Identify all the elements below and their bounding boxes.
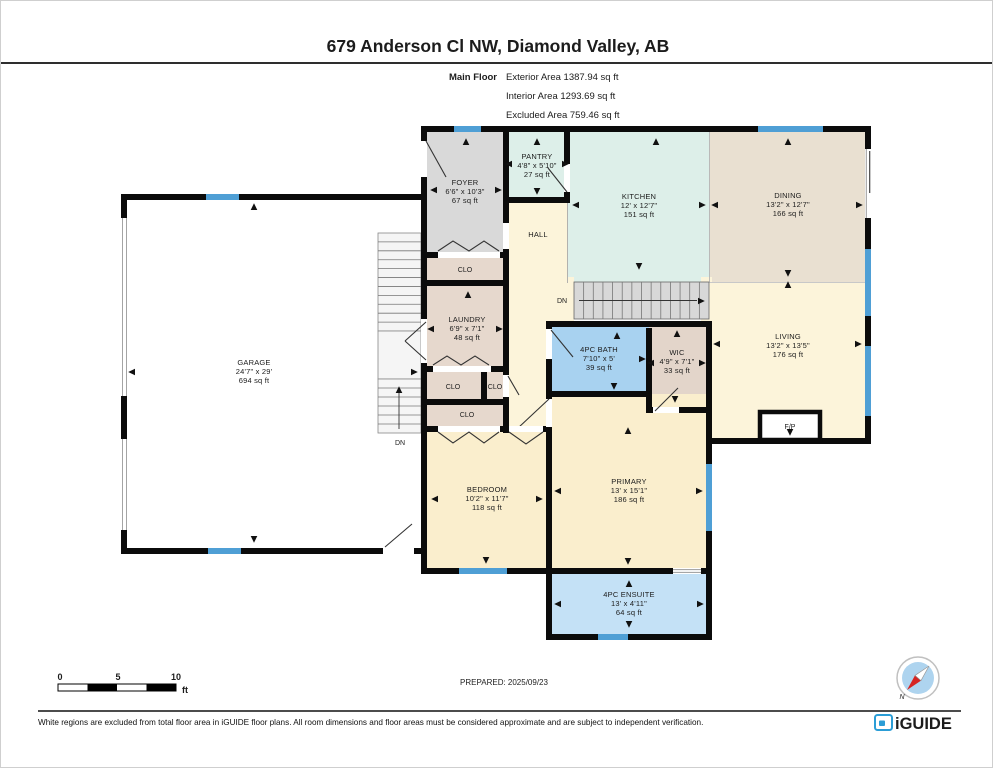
- closet-label: CLO: [488, 384, 503, 391]
- svg-text:13'2" x 12'7": 13'2" x 12'7": [766, 200, 810, 209]
- interior-area: Interior Area 1293.69 sq ft: [506, 91, 616, 102]
- wic-door: [653, 407, 679, 413]
- svg-text:GARAGE: GARAGE: [237, 358, 270, 367]
- hall-label: HALL: [528, 230, 548, 239]
- svg-text:27 sq ft: 27 sq ft: [524, 170, 551, 179]
- window: [208, 548, 241, 554]
- svg-text:4'9" x 7'1": 4'9" x 7'1": [660, 357, 695, 366]
- closet-label: CLO: [458, 267, 473, 274]
- svg-text:BEDROOM: BEDROOM: [467, 485, 507, 494]
- down-label: DN: [395, 440, 405, 447]
- pocket-door: [673, 568, 701, 574]
- room-fills: [124, 129, 868, 637]
- svg-text:KITCHEN: KITCHEN: [622, 192, 656, 201]
- floor-label: Main Floor: [449, 72, 497, 83]
- footer: White regions are excluded from total fl…: [38, 711, 961, 733]
- garage-entry-door: [383, 548, 414, 554]
- scale-tick-10: 10: [171, 672, 181, 682]
- svg-text:176 sq ft: 176 sq ft: [773, 350, 804, 359]
- label-garage: GARAGE 24'7" x 29' 694 sq ft: [236, 358, 273, 385]
- header: 679 Anderson Cl NW, Diamond Valley, AB M…: [1, 36, 993, 121]
- scale-tick-0: 0: [57, 672, 62, 682]
- svg-text:64 sq ft: 64 sq ft: [616, 608, 643, 617]
- excluded-area: Excluded Area 759.46 sq ft: [506, 110, 620, 121]
- svg-text:12' x 12'7": 12' x 12'7": [621, 201, 658, 210]
- window: [459, 568, 507, 574]
- exterior-area: Exterior Area 1387.94 sq ft: [506, 72, 619, 83]
- svg-text:118 sq ft: 118 sq ft: [472, 503, 503, 512]
- svg-text:LIVING: LIVING: [775, 332, 801, 341]
- svg-text:166 sq ft: 166 sq ft: [773, 209, 804, 218]
- down-label: DN: [557, 298, 567, 305]
- floor-plan-page: 679 Anderson Cl NW, Diamond Valley, AB M…: [0, 0, 993, 768]
- svg-text:7'10" x 5': 7'10" x 5': [583, 354, 615, 363]
- floor-plan-canvas: 679 Anderson Cl NW, Diamond Valley, AB M…: [1, 1, 993, 768]
- svg-text:48 sq ft: 48 sq ft: [454, 333, 481, 342]
- label-kitchen: KITCHEN 12' x 12'7" 151 sq ft: [621, 192, 658, 219]
- page-title: 679 Anderson Cl NW, Diamond Valley, AB: [327, 36, 670, 56]
- svg-text:4PC ENSUITE: 4PC ENSUITE: [603, 590, 654, 599]
- window: [706, 464, 712, 531]
- window: [598, 634, 628, 640]
- svg-text:13' x 4'11": 13' x 4'11": [611, 599, 647, 608]
- foyer-hall-opening: [503, 223, 509, 249]
- svg-text:6'9" x 7'1": 6'9" x 7'1": [450, 324, 485, 333]
- svg-text:PANTRY: PANTRY: [522, 152, 553, 161]
- scale-tick-5: 5: [115, 672, 120, 682]
- svg-text:PRIMARY: PRIMARY: [611, 477, 646, 486]
- svg-text:33 sq ft: 33 sq ft: [664, 366, 691, 375]
- compass: N: [897, 657, 939, 701]
- closet-door: [503, 375, 509, 397]
- stairs-basement: [574, 282, 709, 319]
- disclaimer: White regions are excluded from total fl…: [38, 718, 703, 727]
- svg-text:FOYER: FOYER: [452, 178, 479, 187]
- prepared-date: PREPARED: 2025/09/23: [460, 678, 548, 687]
- svg-text:151 sq ft: 151 sq ft: [624, 210, 655, 219]
- svg-text:186 sq ft: 186 sq ft: [614, 495, 645, 504]
- svg-text:694 sq ft: 694 sq ft: [239, 376, 270, 385]
- svg-text:4'8" x 5'10": 4'8" x 5'10": [517, 161, 556, 170]
- svg-text:13' x 15'1": 13' x 15'1": [611, 486, 648, 495]
- svg-text:67 sq ft: 67 sq ft: [452, 196, 479, 205]
- svg-text:LAUNDRY: LAUNDRY: [448, 315, 485, 324]
- scale-unit: ft: [182, 685, 188, 695]
- bedroom-closet-bifold: [438, 426, 500, 432]
- svg-text:10'2" x 11'7": 10'2" x 11'7": [465, 494, 508, 503]
- scale-bar: 0 5 10 ft: [57, 672, 188, 695]
- primary-door: [546, 399, 552, 427]
- entry-door: [421, 141, 427, 177]
- label-laundry: LAUNDRY 6'9" x 7'1" 48 sq ft: [448, 315, 485, 342]
- label-primary: PRIMARY 13' x 15'1" 186 sq ft: [611, 477, 648, 504]
- window: [865, 346, 871, 416]
- bedroom-hall-bifold: [509, 426, 543, 432]
- svg-text:6'6" x 10'3": 6'6" x 10'3": [445, 187, 484, 196]
- foyer-closet-bifold: [438, 252, 500, 258]
- iguide-logo-text: iGUIDE: [895, 715, 952, 733]
- window: [758, 126, 823, 132]
- iguide-logo: iGUIDE: [875, 715, 952, 733]
- window: [454, 126, 481, 132]
- svg-text:24'7" x 29': 24'7" x 29': [236, 367, 273, 376]
- pantry-door: [564, 164, 570, 192]
- closet-label: CLO: [446, 384, 461, 391]
- svg-text:WIC: WIC: [669, 348, 685, 357]
- laundry-bifold: [433, 366, 491, 372]
- bath-door: [546, 329, 552, 359]
- svg-text:13'2" x 13'5": 13'2" x 13'5": [766, 341, 810, 350]
- svg-text:39 sq ft: 39 sq ft: [586, 363, 613, 372]
- closet-label: CLO: [460, 412, 475, 419]
- window: [865, 249, 871, 316]
- svg-text:DINING: DINING: [774, 191, 801, 200]
- window: [206, 194, 239, 200]
- svg-text:4PC BATH: 4PC BATH: [580, 345, 618, 354]
